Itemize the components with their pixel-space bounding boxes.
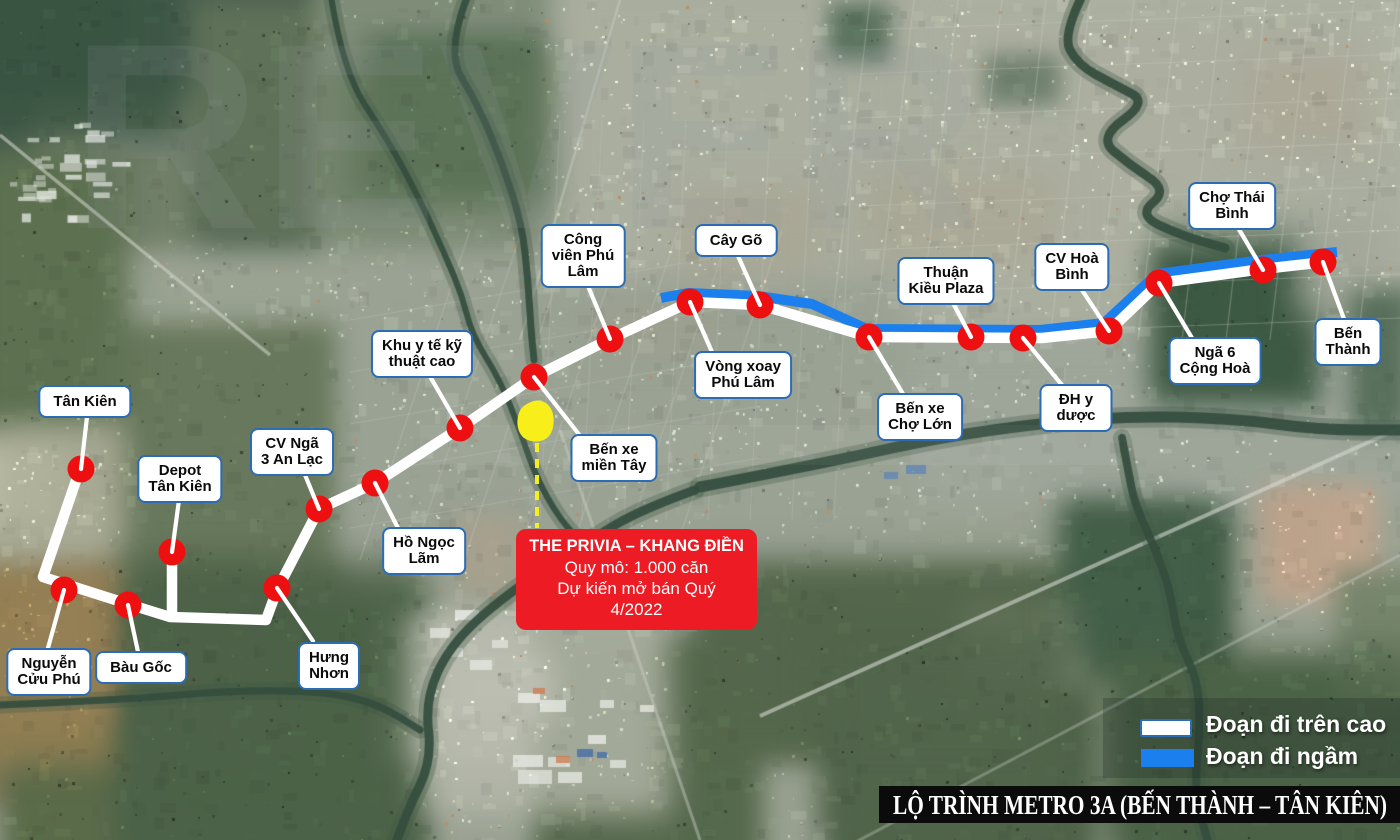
svg-text:REVER: REVER: [70, 0, 983, 285]
